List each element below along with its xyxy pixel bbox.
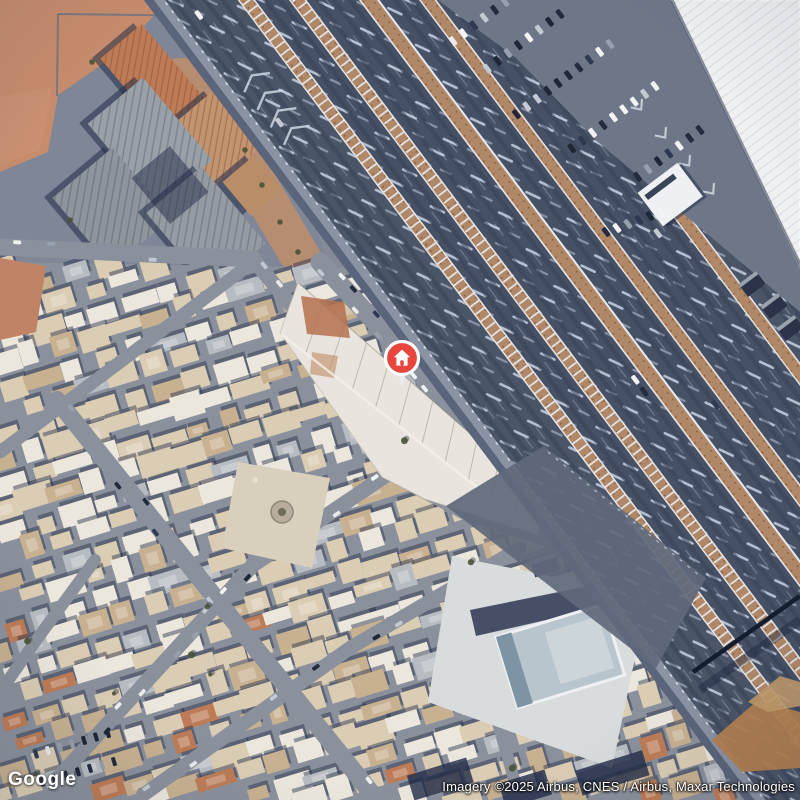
satellite-imagery: [0, 0, 800, 800]
place-marker-pin[interactable]: [380, 338, 424, 394]
satellite-map-canvas[interactable]: Google Imagery ©2025 Airbus, CNES / Airb…: [0, 0, 800, 800]
google-logo[interactable]: Google: [8, 769, 76, 791]
imagery-attribution: Imagery ©2025 Airbus, CNES / Airbus, Max…: [442, 779, 795, 794]
